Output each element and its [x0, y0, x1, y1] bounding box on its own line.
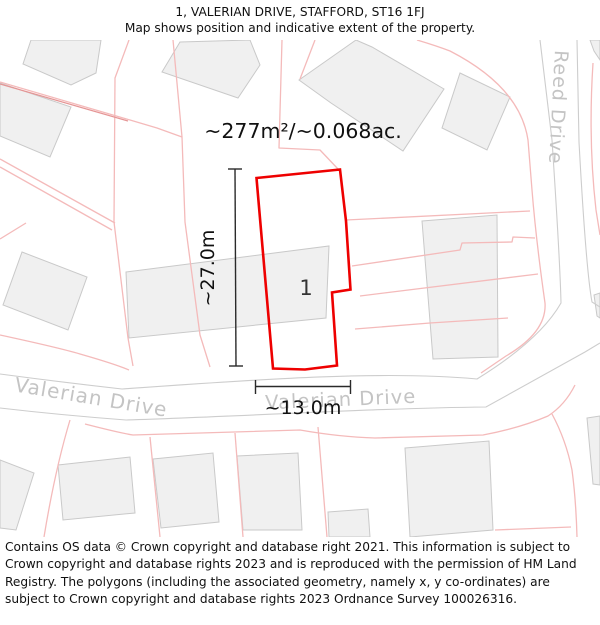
- header: 1, VALERIAN DRIVE, STAFFORD, ST16 1FJ Ma…: [0, 0, 600, 40]
- page-subtitle: Map shows position and indicative extent…: [0, 20, 600, 36]
- dimension-vertical-label: ~27.0m: [197, 230, 219, 307]
- page: { "header": { "title": "1, VALERIAN DRIV…: [0, 0, 600, 625]
- area-label: ~277m²/~0.068ac.: [204, 119, 402, 143]
- street-label-reed: Reed Drive: [544, 50, 572, 165]
- property-map: Valerian Drive Valerian Drive Reed Drive…: [0, 40, 600, 537]
- dimension-horizontal-label: ~13.0m: [265, 397, 342, 419]
- plot-number-label: 1: [299, 276, 312, 300]
- page-title: 1, VALERIAN DRIVE, STAFFORD, ST16 1FJ: [0, 4, 600, 20]
- map-canvas: Valerian Drive Valerian Drive Reed Drive…: [0, 40, 600, 537]
- copyright-notice: Contains OS data © Crown copyright and d…: [0, 539, 593, 608]
- street-label-valerian-left: Valerian Drive: [13, 372, 169, 421]
